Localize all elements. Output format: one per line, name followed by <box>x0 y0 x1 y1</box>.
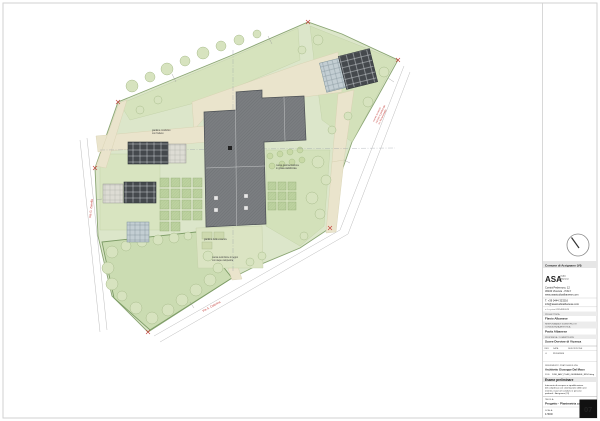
plot <box>171 189 180 198</box>
tree <box>306 192 318 204</box>
description-line: Intervento di recupero e riqualificazion… <box>545 384 584 387</box>
plot <box>268 202 276 210</box>
building-south-greenhouse <box>127 222 149 242</box>
rev-header-desc: DESCRIZIONE <box>568 348 583 350</box>
tree <box>121 241 131 251</box>
orchard-tree <box>267 153 273 159</box>
section-value-designer: Flavio Albanese <box>545 317 568 321</box>
tree <box>190 284 202 296</box>
tree <box>153 235 163 245</box>
firm-website[interactable]: www.asastudioalbanese.com <box>545 293 578 297</box>
plot <box>278 182 286 190</box>
plot <box>288 182 296 190</box>
tree <box>126 80 138 92</box>
label-south-garden: giardino delle essenze <box>204 238 228 241</box>
reference-value: Architetto Giuseppe Dal Maso <box>545 368 585 372</box>
skylight <box>244 194 248 198</box>
rev-header-data: DATA <box>553 347 559 350</box>
road-label-left: Via G. Zanella <box>88 199 94 219</box>
site-plan-drawing: giardino condiviso con frutteto nuova pa… <box>0 0 600 421</box>
orchard-tree <box>299 157 305 163</box>
tree <box>197 47 209 59</box>
tree <box>136 106 144 114</box>
label-fence: nuova recinzione in legno <box>212 256 239 259</box>
tree <box>130 302 142 314</box>
rev-header-rev: REV. <box>545 348 550 350</box>
road-label-bottom: Via S. Caterina <box>202 300 222 313</box>
building-west-2 <box>103 182 156 203</box>
file-label: FILE: <box>545 374 551 376</box>
plot <box>193 211 202 220</box>
plot <box>160 211 169 220</box>
tree <box>117 291 127 301</box>
building-west-1 <box>128 142 186 164</box>
tree <box>106 278 118 290</box>
tree <box>162 304 174 316</box>
plot <box>278 192 286 200</box>
roof-hatch-access <box>228 146 232 150</box>
label-paving-2: in ghiaia stabilizzata <box>276 167 297 170</box>
section-label-consultant-2: CONSULENZA ARTISTICA <box>545 325 571 328</box>
section-label-designer: PROGETTISTA <box>545 313 560 316</box>
section-value-client: Suore Dorotee di Vicenza <box>545 340 581 344</box>
tree <box>213 263 223 273</box>
plot <box>268 192 276 200</box>
plot <box>171 178 180 187</box>
tree <box>176 294 188 306</box>
label-paving: nuova pavimentazione <box>276 164 300 167</box>
plot <box>193 189 202 198</box>
firm-vat: c.f. e p.iva 02354890249 <box>545 309 570 311</box>
skylight <box>244 206 248 210</box>
tree <box>146 312 158 324</box>
sheet-number: 07 <box>584 405 592 414</box>
plot <box>182 211 191 220</box>
firm-address-1: Contrà Pedemuro, 12 <box>545 286 570 290</box>
municipality-name: Comune di Arzignano (VI) <box>545 263 582 267</box>
garden-bed <box>202 232 212 239</box>
tree <box>321 175 331 185</box>
tree <box>216 41 226 51</box>
tree <box>169 233 179 243</box>
plot <box>278 202 286 210</box>
tree <box>298 46 306 54</box>
logo-mark <box>567 234 589 256</box>
road-note-right: nuovo accesso carraio e pedonale su Via … <box>372 103 389 125</box>
label-garden-top-2: con frutteto <box>152 132 164 135</box>
solar-roof <box>128 142 168 164</box>
plot <box>171 211 180 220</box>
orchard-tree <box>297 147 303 153</box>
tree <box>102 262 114 274</box>
plot <box>182 178 191 187</box>
tree <box>379 67 389 77</box>
drawing-sheet: { "plan": { "labels": { "garden_top": ["… <box>0 0 600 421</box>
tree <box>184 232 192 240</box>
section-value-consultant: Paola Albanese <box>545 330 567 334</box>
firm-address-2: 36100 Vicenza - ITALY <box>545 289 572 293</box>
title-block: Comune di Arzignano (VI) ASA studio alba… <box>543 234 597 418</box>
plot <box>193 200 202 209</box>
solar-roof <box>124 182 156 203</box>
tree <box>145 72 155 82</box>
skylight <box>214 208 218 212</box>
tree <box>300 232 308 240</box>
orchard-tree <box>287 149 293 155</box>
firm-tagline-2: albanese <box>560 279 570 281</box>
garden-bed <box>214 232 224 239</box>
section-label-client: PROPRIETÀ / COMMITTENTE <box>545 336 575 339</box>
plot <box>160 200 169 209</box>
label-fence-2: con siepe campestre <box>212 259 234 262</box>
plot <box>193 178 202 187</box>
tree <box>246 258 254 266</box>
logo-circle <box>567 234 589 256</box>
tree <box>234 35 244 45</box>
annex-roof <box>168 144 186 163</box>
plot <box>160 178 169 187</box>
scala-value: 1:500 <box>545 412 553 416</box>
annex-roof <box>103 184 123 203</box>
plot <box>288 192 296 200</box>
tree <box>315 209 325 219</box>
rev-row-date: 21/10/2024 <box>553 353 565 355</box>
description-line: pedonali - Arzignano (VI) <box>545 392 569 395</box>
firm-email[interactable]: info@asastudioalbanese.com <box>545 302 579 306</box>
orchard-tree <box>277 151 283 157</box>
firm-tagline-1: studio <box>560 275 567 278</box>
tree <box>204 274 216 286</box>
plot <box>268 182 276 190</box>
plot <box>171 200 180 209</box>
tree <box>154 96 162 104</box>
label-garden-top: giardino condiviso <box>152 129 171 132</box>
tree <box>253 30 261 38</box>
rev-row-rev: 0 <box>546 353 548 355</box>
plot <box>182 200 191 209</box>
tree <box>180 56 190 66</box>
tree <box>312 156 324 168</box>
tree <box>313 35 323 45</box>
skylight <box>214 196 218 200</box>
plot <box>160 222 169 231</box>
tree <box>344 112 352 120</box>
plot <box>171 222 180 231</box>
description-line: del complesso con sistemazione delle are… <box>545 387 587 390</box>
plot <box>160 189 169 198</box>
file-value: 2436_ARZ_PLAN_GENERALE_REV0.dwg <box>552 373 595 376</box>
plot <box>182 189 191 198</box>
orchard-tree <box>269 163 275 169</box>
tree <box>328 126 336 134</box>
garden-bed <box>202 242 212 249</box>
description-line: esterne, nuovi orti condivisi e percorsi <box>545 389 582 392</box>
phase-title: Esame preliminare <box>545 378 574 382</box>
plot <box>288 202 296 210</box>
tree <box>258 252 266 260</box>
section-label-consultant: RESPONSABILE SCIENTIFICO E <box>545 322 577 325</box>
logo-needle <box>572 238 580 249</box>
tree <box>106 246 118 258</box>
tree <box>363 97 373 107</box>
tree <box>161 63 173 75</box>
